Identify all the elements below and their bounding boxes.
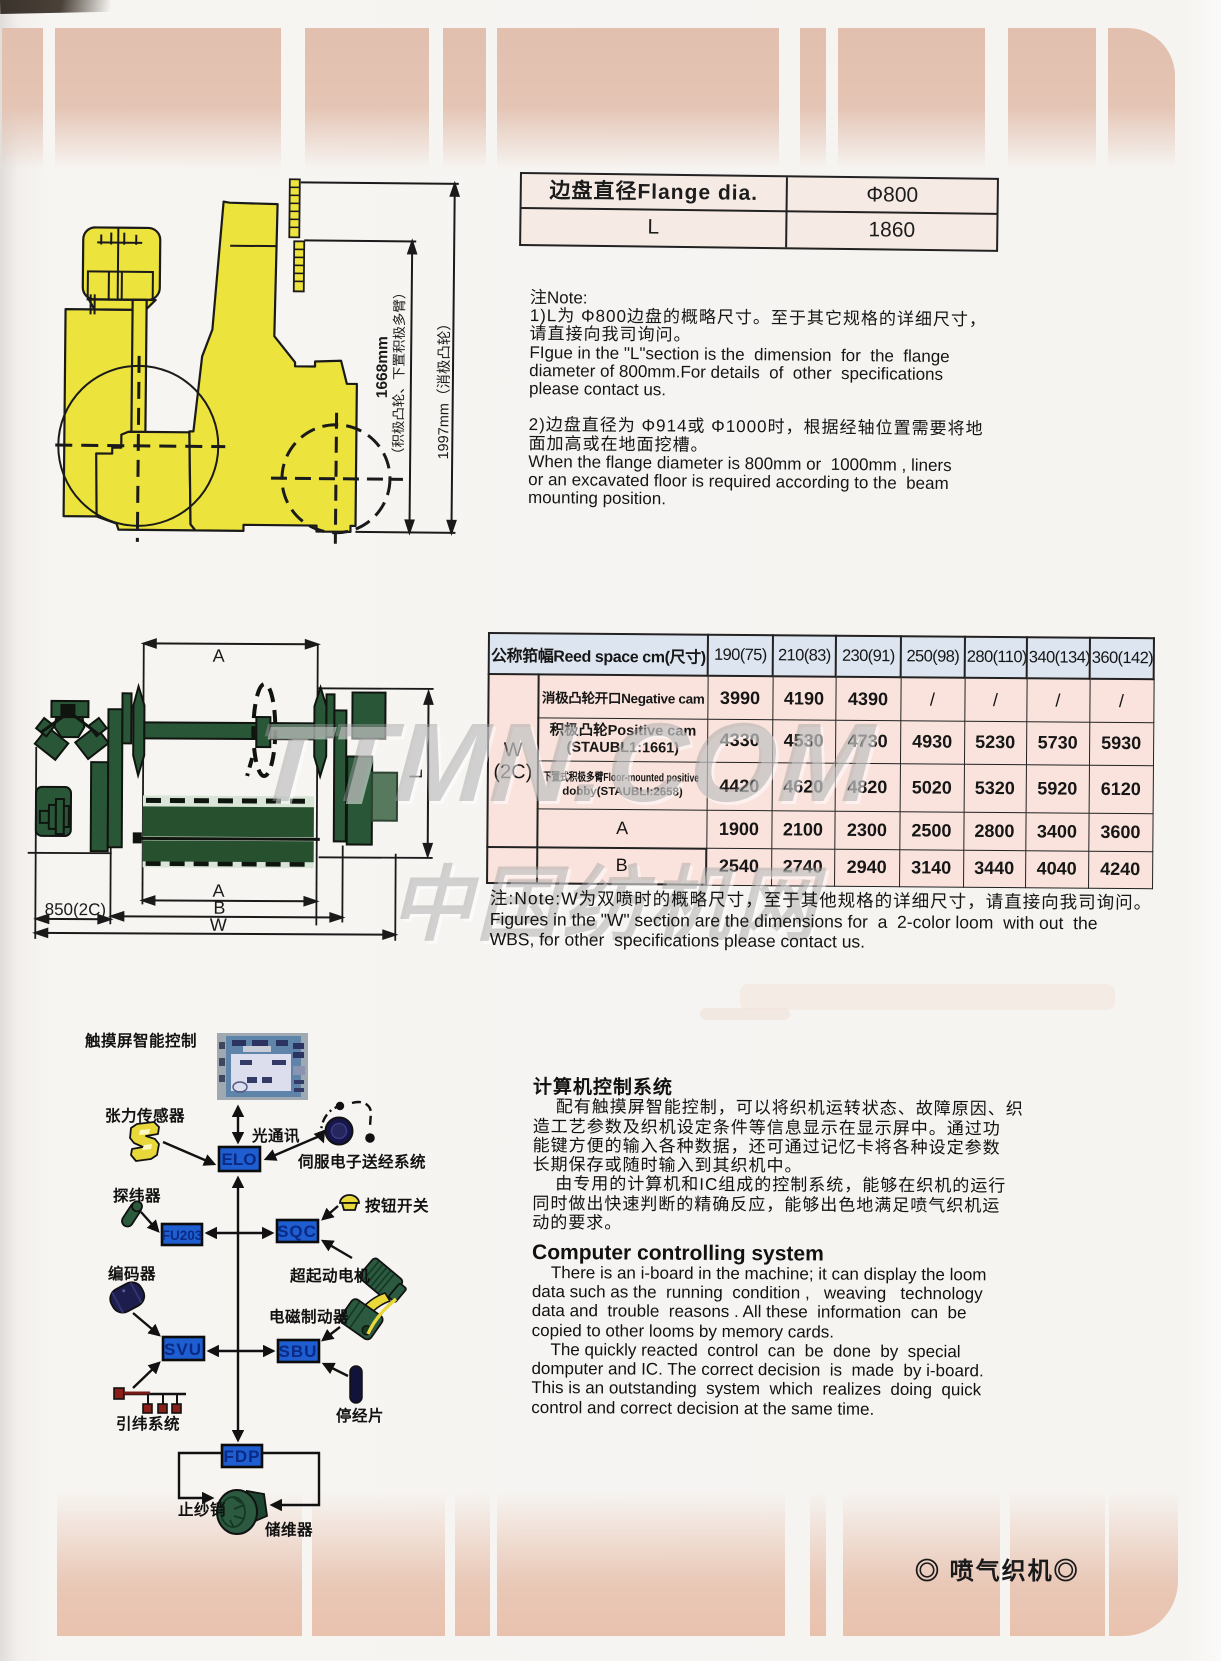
svg-text:止纱销: 止纱销 (178, 1500, 226, 1519)
svg-text:光通讯: 光通讯 (251, 1126, 300, 1145)
svg-text:（积极凸轮、下置积极多臂）: （积极凸轮、下置积极多臂） (390, 286, 408, 462)
svg-text:伺服电子送经系统: 伺服电子送经系统 (297, 1152, 426, 1171)
svg-text:停经片: 停经片 (336, 1406, 384, 1425)
svg-text:SVU: SVU (164, 1340, 202, 1359)
svg-text:张力传感器: 张力传感器 (105, 1106, 185, 1125)
svg-text:W: W (210, 915, 227, 935)
svg-text:触摸屏智能控制: 触摸屏智能控制 (84, 1031, 197, 1050)
svg-text:储维器: 储维器 (264, 1520, 313, 1539)
svg-text:A: A (213, 646, 225, 666)
svg-text:1668mm: 1668mm (374, 336, 392, 398)
svg-text:超起动电机: 超起动电机 (289, 1266, 370, 1285)
svg-text:编码器: 编码器 (108, 1264, 156, 1283)
svg-text:FU203: FU203 (162, 1228, 203, 1243)
svg-text:FDP: FDP (224, 1447, 261, 1466)
svg-text:SBU: SBU (279, 1342, 318, 1361)
svg-text:ELO: ELO (222, 1150, 257, 1169)
svg-text:电磁制动器: 电磁制动器 (269, 1307, 349, 1326)
svg-text:按钮开关: 按钮开关 (365, 1196, 429, 1215)
svg-text:SQC: SQC (277, 1222, 317, 1241)
svg-text:引纬系统: 引纬系统 (116, 1414, 180, 1433)
svg-text:850(2C): 850(2C) (45, 900, 107, 919)
svg-text:1997mm（消极凸轮）: 1997mm（消极凸轮） (435, 316, 453, 460)
svg-text:探纬器: 探纬器 (113, 1186, 161, 1205)
